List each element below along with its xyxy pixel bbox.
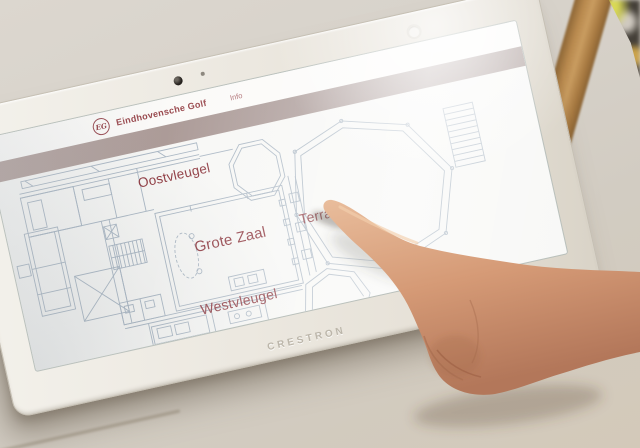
club-logo: EG bbox=[91, 116, 111, 136]
camera-icon bbox=[173, 75, 184, 86]
header-secondary-label: Info bbox=[229, 90, 243, 101]
light-sensor-icon bbox=[405, 23, 423, 41]
mic-hole-icon bbox=[200, 71, 205, 76]
photo-scene: EG Eindhovensche Golf Info bbox=[0, 0, 640, 448]
